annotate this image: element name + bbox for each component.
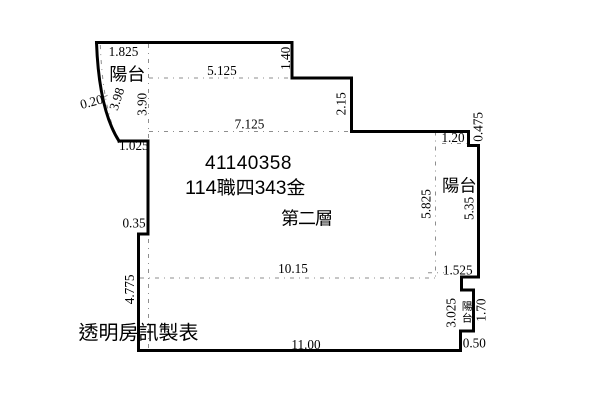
svg-text:1.525: 1.525: [443, 262, 473, 277]
svg-text:0.50: 0.50: [463, 336, 486, 351]
svg-text:1.40: 1.40: [278, 46, 293, 69]
svg-text:11.00: 11.00: [291, 337, 321, 352]
svg-text:2.15: 2.15: [333, 92, 348, 115]
svg-text:3.025: 3.025: [444, 298, 459, 328]
svg-text:7.125: 7.125: [235, 117, 265, 132]
svg-text:5.125: 5.125: [207, 63, 237, 78]
svg-text:0.35: 0.35: [122, 216, 145, 231]
svg-text:114: 114: [185, 178, 217, 199]
svg-text:10.15: 10.15: [278, 261, 308, 276]
svg-text:1.70: 1.70: [473, 298, 488, 321]
svg-text:1.20: 1.20: [441, 130, 464, 145]
svg-text:343: 343: [255, 178, 287, 199]
svg-text:5.825: 5.825: [419, 189, 434, 219]
svg-text:0.475: 0.475: [471, 112, 486, 142]
svg-text:4.775: 4.775: [122, 274, 137, 304]
svg-text:41140358: 41140358: [205, 153, 291, 174]
svg-text:3.90: 3.90: [134, 92, 149, 115]
svg-text:5.35: 5.35: [462, 197, 477, 220]
svg-text:1.825: 1.825: [109, 44, 139, 59]
svg-text:1.025: 1.025: [119, 138, 149, 153]
